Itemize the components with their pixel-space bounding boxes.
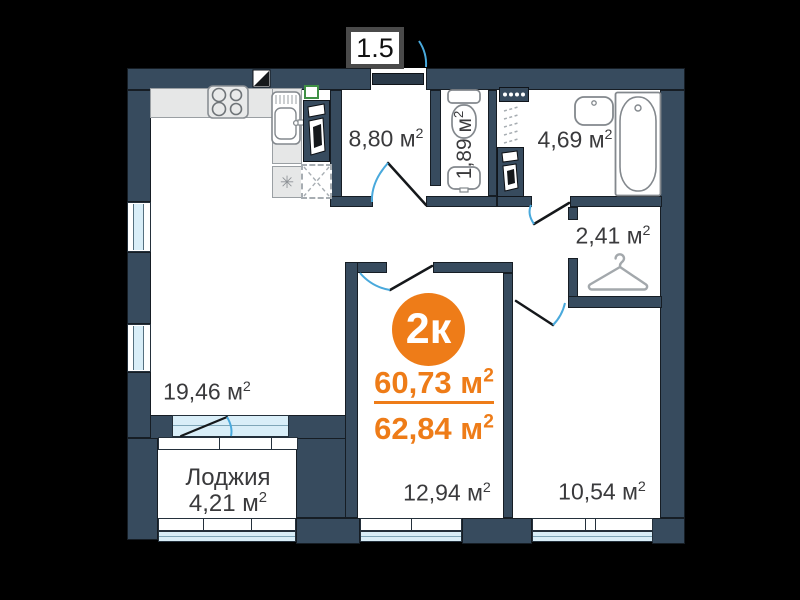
room-label-kitchen-living: 19,46 м2: [163, 379, 251, 406]
wall-segment: [652, 518, 685, 544]
loggia-glass: [158, 531, 296, 542]
window-glass: [133, 326, 144, 370]
wall-segment: [426, 68, 685, 90]
room-label-wc: 1,89 м2: [451, 111, 477, 179]
wall-segment: [426, 196, 497, 207]
window-sill: [532, 518, 653, 531]
wall-segment: [570, 196, 662, 207]
bathroom-sink-icon: [573, 95, 615, 127]
total-area-value: 62,84 м2: [374, 411, 494, 447]
floor-plan: 1.5: [0, 0, 800, 600]
window: [127, 324, 151, 372]
scale-badge-label: 1.5: [356, 33, 394, 64]
vent-box-icon: [304, 85, 319, 99]
loggia-sill: [158, 518, 296, 531]
riser-shaft-icon: [303, 100, 330, 162]
room-label-bedroom-1: 12,94 м2: [403, 480, 491, 507]
sill-divider: [219, 438, 220, 449]
wall-segment: [503, 273, 513, 518]
sill-divider: [251, 519, 252, 530]
duct-hatch-icon: [500, 103, 524, 145]
room-label-entry-hall: 2,41 м2: [576, 223, 651, 250]
wall-segment: [127, 252, 151, 324]
wall-segment: [568, 207, 578, 220]
living-area-value: 60,73 м2: [374, 365, 494, 401]
wall-segment: [127, 90, 151, 202]
sill-divider: [203, 519, 204, 530]
wall-segment: [497, 196, 532, 207]
rooms-count-label: 2к: [406, 305, 451, 354]
wall-segment: [330, 196, 373, 207]
rooms-count-badge: 2к: [392, 293, 465, 366]
wall-segment: [488, 90, 497, 196]
entrance-door-leaf: [372, 73, 424, 85]
kitchen-sink-icon: [270, 90, 306, 146]
fridge-icon: ✳: [272, 166, 302, 198]
room-label-bathroom: 4,69 м2: [538, 127, 613, 154]
fridge-asterisk: ✳: [280, 173, 294, 192]
wall-segment: [150, 415, 173, 439]
wall-segment: [660, 90, 685, 518]
sill-divider: [585, 519, 586, 530]
window-sill: [360, 518, 462, 531]
loggia-name-label: Лоджия: [185, 464, 270, 492]
room-label-hallway: 8,80 м2: [349, 126, 424, 153]
wall-segment: [127, 372, 151, 438]
stove-icon: [206, 84, 250, 120]
wall-segment: [127, 438, 158, 540]
balcony-window-unit: [172, 415, 289, 437]
hanger-icon: [586, 252, 650, 292]
wall-segment: [462, 518, 532, 544]
wall-segment: [430, 90, 441, 186]
area-divider: [374, 401, 494, 404]
riser-shaft-icon: [497, 147, 524, 197]
sill-divider: [595, 519, 596, 530]
sill-divider: [411, 519, 412, 530]
wall-segment: [568, 258, 578, 298]
entrance-marker-icon: [252, 69, 271, 88]
wall-segment: [345, 262, 358, 518]
window: [127, 202, 151, 252]
sill-divider: [271, 438, 272, 449]
window-glass: [532, 531, 653, 542]
wall-segment: [433, 262, 513, 273]
wall-segment: [568, 296, 662, 308]
wall-segment: [296, 518, 360, 544]
loggia-area-label: 4,21 м2: [189, 490, 267, 518]
balcony-sill: [158, 437, 298, 450]
room-label-bedroom-2: 10,54 м2: [558, 479, 646, 506]
window-glass: [133, 204, 144, 250]
bathtub-icon: [614, 91, 662, 197]
duct-shaft-icon: [301, 164, 332, 199]
scale-badge: 1.5: [346, 27, 404, 69]
washing-machine-icon: [499, 87, 529, 102]
window-glass: [360, 531, 462, 542]
